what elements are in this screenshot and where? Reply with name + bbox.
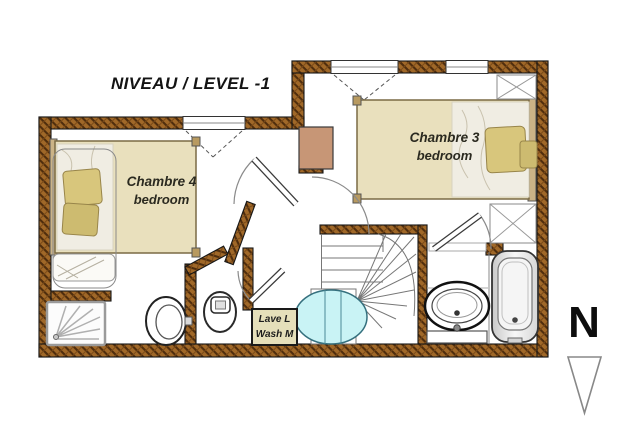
cyan-fixture-ellipse [295,290,367,344]
room-label-chambre3: Chambre 3 bedroom [392,128,497,165]
spa-cyan-fixture [295,289,367,344]
room-name-chambre4: Chambre 4 [104,172,219,191]
bed4-post [192,137,200,146]
shower-tray [47,302,105,345]
bed3-pillow [520,141,537,168]
room-type-chambre4: bedroom [104,191,219,209]
window-chambre4 [183,117,245,130]
wall-wc-left [185,264,196,344]
washing-machine-label-line1: Lave L [253,312,296,327]
floor-plan: NIVEAU / LEVEL -1 Chambre 4 bedroom Cham… [0,0,640,427]
closet-bottom [490,204,536,243]
north-arrow-triangle [568,357,601,413]
room-name-chambre3: Chambre 3 [392,128,497,147]
wall-stairs-right [418,225,427,344]
plan-title: NIVEAU / LEVEL -1 [111,74,271,94]
room-label-chambre4: Chambre 4 bedroom [104,172,219,209]
floor-plan-drawing [0,0,640,427]
door-bathroom [429,215,491,251]
counter-front [427,331,487,343]
wall-stairs-top [320,225,427,234]
compass-north-label: N [564,301,604,345]
bed4-pillow [63,168,103,206]
wall-top-left [39,117,304,129]
closet-top [497,75,536,99]
bed4-pillow [62,203,99,236]
room-type-chambre3: bedroom [392,147,497,165]
washing-machine-label: Lave L Wash M [251,308,298,346]
toilet [204,292,236,332]
window-chambre3-right [446,61,488,74]
bed-chambre4 [50,137,200,288]
chimney-block [299,127,333,169]
wall-top-right [292,61,548,73]
washing-machine-label-line2: Wash M [253,327,296,342]
door-chambre4 [234,159,296,204]
bed3-post [353,96,361,105]
window-chambre3-left [331,61,398,74]
bathtub [492,251,538,343]
washbasin [425,252,489,343]
wall-shower [51,291,111,301]
bed4-post [192,248,200,257]
bed4-footbench [53,254,115,281]
